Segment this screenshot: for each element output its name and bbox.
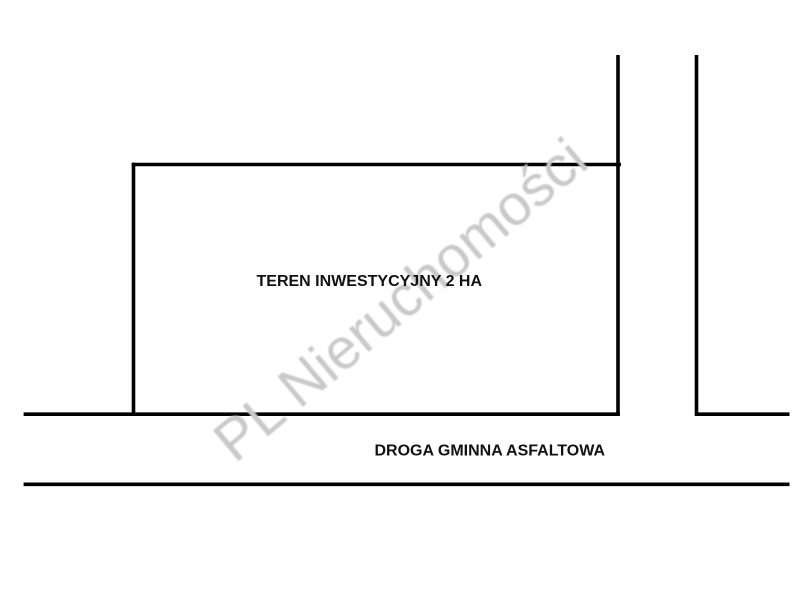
svg-text:TEREN INWESTYCYJNY 2 HA: TEREN INWESTYCYJNY 2 HA: [257, 273, 483, 290]
svg-text:DROGA GMINNA ASFALTOWA: DROGA GMINNA ASFALTOWA: [375, 442, 606, 459]
svg-text:PL Nieruchomości: PL Nieruchomości: [202, 126, 599, 474]
